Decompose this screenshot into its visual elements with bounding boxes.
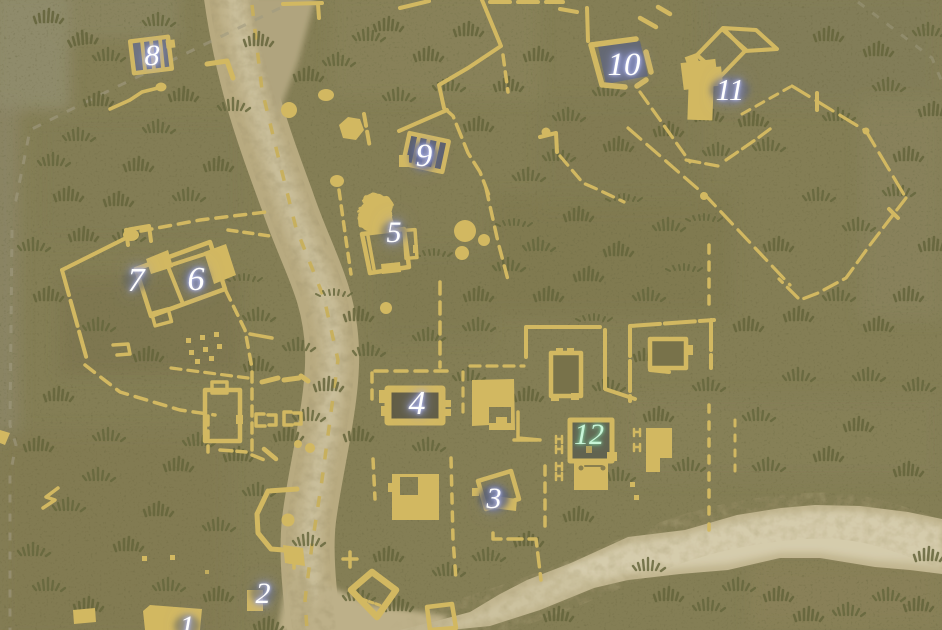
svg-text:1: 1: [180, 610, 195, 630]
svg-text:10: 10: [608, 47, 642, 83]
svg-text:2: 2: [256, 577, 271, 610]
svg-text:6: 6: [188, 261, 205, 298]
svg-text:8: 8: [145, 39, 160, 72]
svg-text:7: 7: [128, 262, 147, 299]
svg-text:5: 5: [387, 216, 402, 249]
svg-text:3: 3: [486, 482, 502, 515]
svg-text:9: 9: [416, 138, 433, 174]
svg-text:12: 12: [574, 418, 604, 451]
svg-text:4: 4: [409, 385, 426, 422]
svg-text:11: 11: [716, 72, 745, 107]
